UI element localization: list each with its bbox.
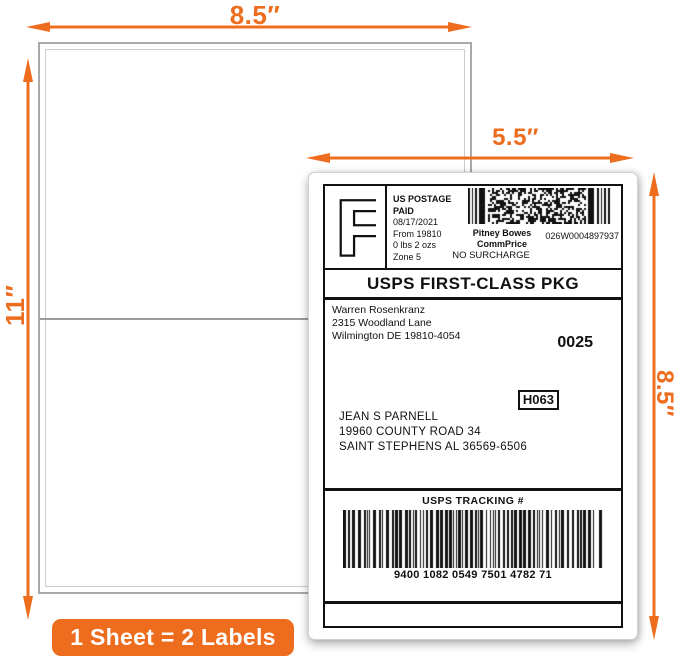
meter-barcode-icon — [468, 188, 612, 224]
carrier-line1: Pitney Bowes — [452, 228, 552, 239]
f-logo-icon: F — [334, 194, 376, 260]
product-illustration: 8.5″ 11″ 5.5″ 8.5″ F — [0, 0, 679, 659]
label-width-label: 5.5″ — [458, 124, 573, 152]
postage-date: 08/17/2021 — [393, 217, 451, 229]
sender-city: Wilmington DE 19810-4054 — [332, 330, 460, 343]
label-height-arrow — [646, 170, 662, 642]
sender-street: 2315 Woodland Lane — [332, 317, 460, 330]
label-width-arrow — [304, 150, 636, 166]
tracking-barcode-icon — [343, 510, 603, 568]
sort-code-box: H063 — [518, 390, 559, 410]
tracking-section: USPS TRACKING # 9400 1082 0549 7501 4782… — [325, 491, 621, 604]
postage-from: From 19810 — [393, 229, 451, 241]
postage-header: F US POSTAGE PAID 08/17/2021 From 19810 … — [325, 186, 621, 270]
sender-address: Warren Rosenkranz 2315 Woodland Lane Wil… — [332, 304, 460, 343]
recipient-street: 19960 COUNTY ROAD 34 — [339, 425, 527, 440]
meter-number: 026W0004897937 — [545, 231, 619, 241]
shipping-label-card: F US POSTAGE PAID 08/17/2021 From 19810 … — [308, 172, 638, 640]
postage-line2: PAID — [393, 206, 451, 218]
label-footer-blank — [325, 604, 621, 626]
recipient-city: SAINT STEPHENS AL 36569-6506 — [339, 440, 527, 455]
carrier-block: Pitney Bowes CommPrice — [452, 228, 552, 250]
sender-name: Warren Rosenkranz — [332, 304, 460, 317]
recipient-name: JEAN S PARNELL — [339, 410, 527, 425]
tracking-title: USPS TRACKING # — [325, 495, 621, 507]
first-class-f-logo: F — [325, 186, 387, 268]
service-class-banner: USPS FIRST-CLASS PKG — [325, 270, 621, 300]
shipping-label: F US POSTAGE PAID 08/17/2021 From 19810 … — [323, 184, 623, 628]
postage-line1: US POSTAGE — [393, 194, 451, 206]
batch-number: 0025 — [557, 334, 593, 352]
tracking-number: 9400 1082 0549 7501 4782 71 — [325, 569, 621, 581]
address-section: Warren Rosenkranz 2315 Woodland Lane Wil… — [325, 300, 621, 491]
f-logo-letter: F — [337, 194, 376, 260]
sheet-width-arrow — [24, 19, 474, 35]
surcharge-note: NO SURCHARGE — [431, 250, 551, 261]
recipient-address: JEAN S PARNELL 19960 COUNTY ROAD 34 SAIN… — [339, 410, 527, 455]
sheet-height-arrow — [20, 56, 36, 622]
carrier-line2: CommPrice — [452, 239, 552, 250]
sheet-equals-labels-badge: 1 Sheet = 2 Labels — [52, 619, 294, 656]
